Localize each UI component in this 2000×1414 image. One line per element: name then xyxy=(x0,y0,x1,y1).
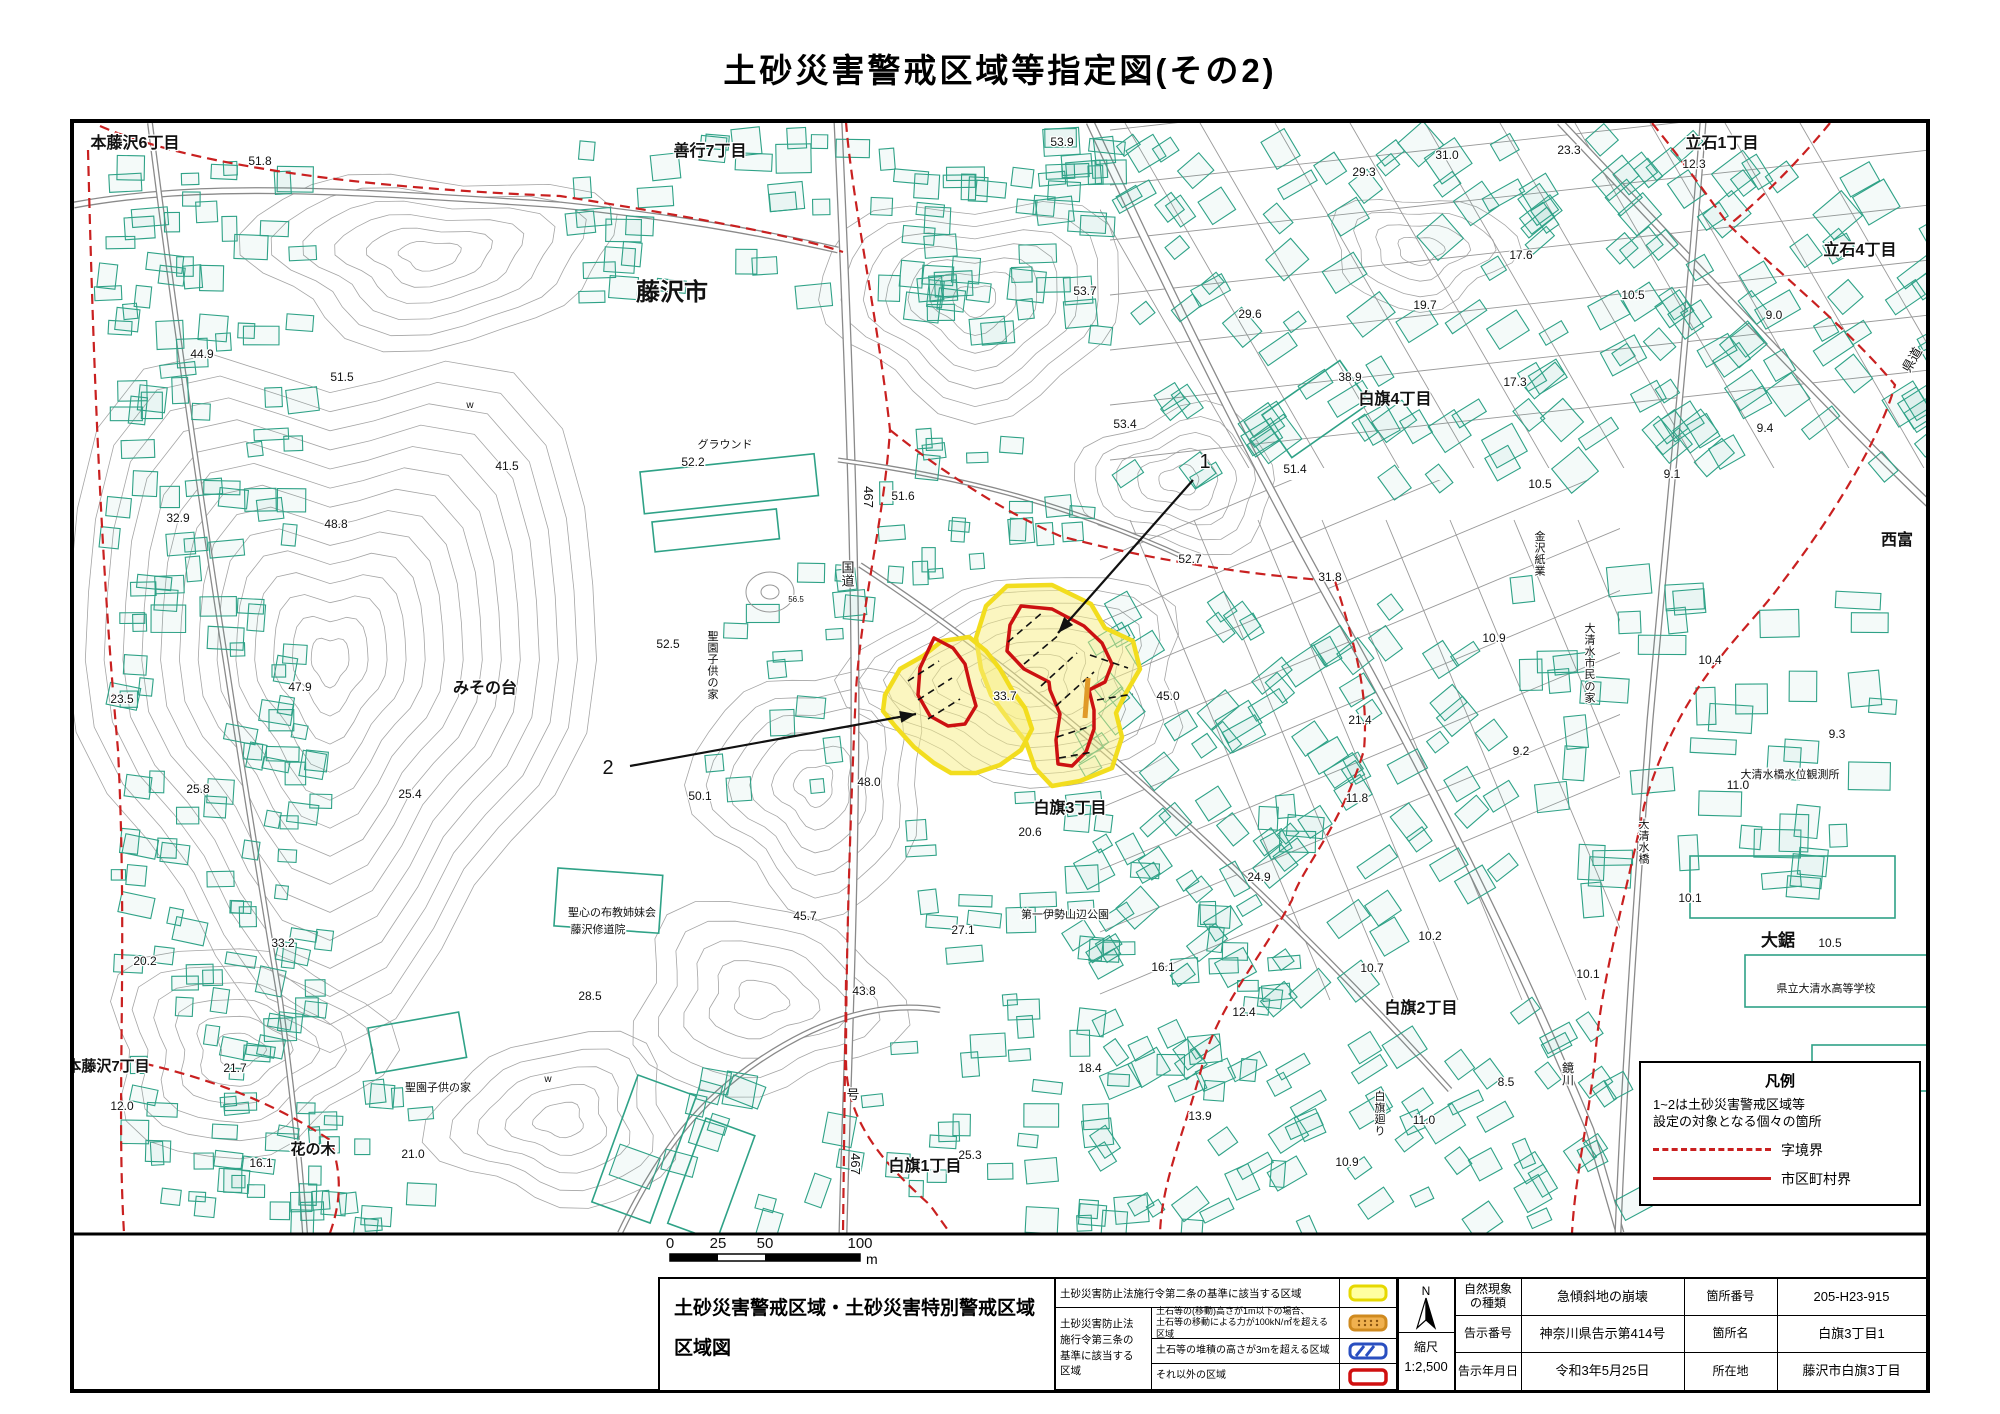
map-label: 10.9 xyxy=(1482,631,1506,645)
legend-row3-label: 土石等の堆積の高さが3mを超える区域 xyxy=(1152,1339,1340,1364)
map-label: 21.7 xyxy=(223,1061,247,1075)
map-label: 17.3 xyxy=(1503,375,1527,389)
info-label-notice-number: 告示番号 xyxy=(1456,1316,1522,1353)
map-label-vertical: 大清水橋 xyxy=(1639,817,1650,866)
map-legend-note: 1~2は土砂災害警戒区域等 設定の対象となる個々の箇所 xyxy=(1653,1097,1907,1131)
map-label: 16.1 xyxy=(249,1156,273,1170)
map-label: 10.5 xyxy=(1621,288,1645,302)
debris-height-swatch xyxy=(1340,1308,1397,1339)
map-label: 10.7 xyxy=(1360,961,1384,975)
map-label: 11.0 xyxy=(1727,778,1750,792)
map-label: 10.4 xyxy=(1698,653,1722,667)
map-label: 27.1 xyxy=(951,923,975,937)
map-label: 西富 xyxy=(1881,530,1913,549)
map-label: 本藤沢7丁目 xyxy=(66,1057,149,1075)
map-label: 28.5 xyxy=(578,989,602,1003)
map-label: 21.0 xyxy=(401,1147,425,1161)
map-label: 44.9 xyxy=(190,347,214,361)
map-label: 2 xyxy=(602,757,613,779)
map-label: 467 xyxy=(861,486,876,508)
map-label: 21.4 xyxy=(1348,713,1372,727)
solid-boundary-label: 市区町村界 xyxy=(1781,1169,1851,1189)
map-label: 20.2 xyxy=(133,954,157,968)
map-label: 45.7 xyxy=(793,909,817,923)
compass-scale-box: N 縮尺 1:2,500 xyxy=(1397,1277,1456,1392)
legend-row4-label: それ以外の区域 xyxy=(1152,1364,1340,1390)
map-label: 31.8 xyxy=(1318,570,1342,584)
map-label: 11.0 xyxy=(1413,1113,1436,1127)
map-label: 10.5 xyxy=(1818,936,1842,950)
map-label: 467 xyxy=(848,1153,863,1175)
info-label-notice-date: 告示年月日 xyxy=(1456,1353,1522,1390)
map-label: 8.5 xyxy=(1498,1075,1515,1089)
info-value-site-number: 205-H23-915 xyxy=(1778,1279,1926,1316)
north-letter: N xyxy=(1422,1284,1431,1298)
map-label: 17.6 xyxy=(1509,248,1533,262)
info-value-location: 藤沢市白旗3丁目 xyxy=(1778,1353,1926,1390)
map-label: 51.5 xyxy=(330,370,354,384)
map-label: 51.4 xyxy=(1283,462,1307,476)
map-label: 11.8 xyxy=(1346,791,1369,805)
map-label: 10.9 xyxy=(1335,1155,1359,1169)
map-label: 第一伊勢山辺公園 xyxy=(1021,907,1109,921)
info-value-phenomenon: 急傾斜地の崩壊 xyxy=(1522,1279,1685,1316)
solid-boundary-sample xyxy=(1653,1177,1771,1180)
map-label-vertical: 国道 xyxy=(841,560,854,589)
info-value-notice-date: 令和3年5月25日 xyxy=(1522,1353,1685,1390)
other-zone-swatch xyxy=(1340,1364,1397,1390)
map-label: 県立大清水高等学校 xyxy=(1777,981,1876,995)
map-label: 43.8 xyxy=(852,984,876,998)
map-label: 32.9 xyxy=(166,511,190,525)
map-label: 45.0 xyxy=(1156,689,1180,703)
info-label-location: 所在地 xyxy=(1685,1353,1778,1390)
zone-legend-table: 土砂災害防止法施行令第二条の基準に該当する区域 土砂災害防止法 施行令第三条の … xyxy=(1054,1277,1399,1392)
map-label: 52.7 xyxy=(1178,552,1202,566)
info-value-site-name: 白旗3丁目1 xyxy=(1778,1316,1926,1353)
map-label: 19.7 xyxy=(1413,298,1437,312)
map-label: 52.2 xyxy=(681,455,705,469)
map-label: w xyxy=(465,400,474,411)
map-label: 9.4 xyxy=(1757,421,1774,435)
map-label: 立石1丁目 xyxy=(1686,133,1759,152)
map-label: 白旗4丁目 xyxy=(1359,389,1432,408)
map-label: 33.7 xyxy=(993,689,1017,703)
map-label-vertical: 金沢紙業 xyxy=(1535,529,1546,578)
map-legend-title: 凡例 xyxy=(1653,1070,1907,1091)
map-label-vertical: 聖園子供の家 xyxy=(708,630,719,701)
map-label-vertical: 鏡川 xyxy=(1562,1060,1574,1088)
map-label: 9.3 xyxy=(1829,727,1846,741)
map-label-vertical: 大清水市民の家 xyxy=(1585,621,1596,704)
map-label: 1 xyxy=(1199,451,1210,473)
map-label: 25.4 xyxy=(398,787,422,801)
map-label: 白旗1丁目 xyxy=(889,1156,962,1175)
map-label: 48.8 xyxy=(324,517,348,531)
map-label: 51.6 xyxy=(891,489,915,503)
map-label: みその台 xyxy=(453,678,517,697)
map-label: 53.7 xyxy=(1073,284,1097,298)
info-label-phenomenon: 自然現象 の種類 xyxy=(1456,1279,1522,1316)
map-label: 25.8 xyxy=(186,782,210,796)
map-label: 10.2 xyxy=(1418,929,1442,943)
map-label-vertical: 白旗廻り xyxy=(1375,1089,1386,1138)
map-label: 18.4 xyxy=(1078,1061,1102,1075)
map-label: 10.1 xyxy=(1576,967,1600,981)
legend-row2-label: 土石等の(移動)高さが1m以下の場合、 土石等の移動による力が100kN/㎡を超… xyxy=(1152,1308,1340,1339)
map-label: 善行7丁目 xyxy=(674,141,747,160)
info-label-site-number: 箇所番号 xyxy=(1685,1279,1778,1316)
sheet-title-line2: 区域図 xyxy=(674,1329,1041,1369)
map-label: 52.5 xyxy=(656,637,680,651)
designation-info-table: 自然現象 の種類 急傾斜地の崩壊 箇所番号 205-H23-915 告示番号 神… xyxy=(1454,1277,1928,1392)
map-label: 12.4 xyxy=(1232,1005,1256,1019)
map-label: 100 xyxy=(847,1235,872,1252)
map-label: 50 xyxy=(757,1235,774,1252)
legend-group-label: 土砂災害防止法 施行令第三条の 基準に該当する 区域 xyxy=(1056,1308,1152,1390)
map-legend-box: 凡例 1~2は土砂災害警戒区域等 設定の対象となる個々の箇所 字境界 市区町村界 xyxy=(1639,1061,1921,1206)
map-label: 41.5 xyxy=(495,459,519,473)
map-label: 23.5 xyxy=(110,692,134,706)
map-label: 藤沢市 xyxy=(636,278,708,306)
info-value-notice-number: 神奈川県告示第414号 xyxy=(1522,1316,1685,1353)
map-label: 53.4 xyxy=(1113,417,1137,431)
map-label: 9.0 xyxy=(1766,308,1783,322)
north-arrow-icon: N xyxy=(1399,1279,1454,1333)
map-label: 16.1 xyxy=(1151,960,1175,974)
map-label: 48.0 xyxy=(857,775,881,789)
legend-row1-label: 土砂災害防止法施行令第二条の基準に該当する区域 xyxy=(1056,1279,1340,1308)
map-label: 本藤沢6丁目 xyxy=(91,133,180,152)
map-label: 13.9 xyxy=(1188,1109,1212,1123)
map-label: 12.3 xyxy=(1682,157,1706,171)
map-label: 31.0 xyxy=(1435,148,1459,162)
map-label: 藤沢修道院 xyxy=(571,922,626,936)
map-label: 51.8 xyxy=(248,154,272,168)
scale-label: 縮尺 xyxy=(1399,1338,1454,1357)
map-label: 29.6 xyxy=(1238,307,1262,321)
map-label: 23.3 xyxy=(1557,143,1581,157)
info-label-site-name: 箇所名 xyxy=(1685,1316,1778,1353)
sheet-title-line1: 土砂災害警戒区域・土砂災害特別警戒区域 xyxy=(674,1289,1041,1329)
deposit-height-swatch xyxy=(1340,1339,1397,1364)
map-label: 10.5 xyxy=(1528,477,1552,491)
warning-zone-swatch xyxy=(1340,1279,1397,1308)
map-label: 10.1 xyxy=(1678,891,1702,905)
map-label: 24.9 xyxy=(1247,870,1271,884)
sheet-title-block: 土砂災害警戒区域・土砂災害特別警戒区域 区域図 xyxy=(658,1277,1057,1392)
map-label: 25 xyxy=(710,1235,727,1252)
map-label: 0 xyxy=(666,1235,674,1252)
map-label: 20.6 xyxy=(1018,825,1042,839)
map-label: 大清水橋水位観測所 xyxy=(1741,767,1840,781)
map-label: 大鋸 xyxy=(1761,930,1795,950)
map-label: 聖心の布教姉妹会 xyxy=(568,905,656,919)
map-label: w xyxy=(543,1074,552,1085)
map-label: 9.2 xyxy=(1513,744,1530,758)
map-label: 立石4丁目 xyxy=(1824,240,1897,259)
map-label: 9.1 xyxy=(1664,467,1681,481)
map-label: グラウンド xyxy=(698,437,753,451)
page: 土砂災害警戒区域等指定図(その2) 12本藤沢6丁目善行7丁目藤沢市立石1丁目立… xyxy=(0,0,2000,1414)
scale-value: 1:2,500 xyxy=(1399,1357,1454,1378)
map-label: 53.9 xyxy=(1050,135,1074,149)
map-label: 47.9 xyxy=(288,680,312,694)
scale-bar-unit: m xyxy=(866,1251,878,1267)
map-label: 花の木 xyxy=(290,1140,336,1158)
dashed-boundary-sample xyxy=(1653,1148,1771,1151)
map-label: 号 xyxy=(846,1087,859,1102)
map-label: 29.3 xyxy=(1352,165,1376,179)
map-label: 50.1 xyxy=(688,789,712,803)
map-label: 聖園子供の家 xyxy=(405,1080,471,1094)
map-label: 白旗3丁目 xyxy=(1034,798,1107,817)
map-label: 25.3 xyxy=(958,1148,982,1162)
map-label: 33.2 xyxy=(271,936,295,950)
dashed-boundary-label: 字境界 xyxy=(1781,1140,1823,1160)
map-label: 56.5 xyxy=(788,595,804,604)
map-label: 12.0 xyxy=(110,1099,134,1113)
map-label: 38.9 xyxy=(1338,370,1362,384)
map-label: 白旗2丁目 xyxy=(1385,998,1458,1017)
